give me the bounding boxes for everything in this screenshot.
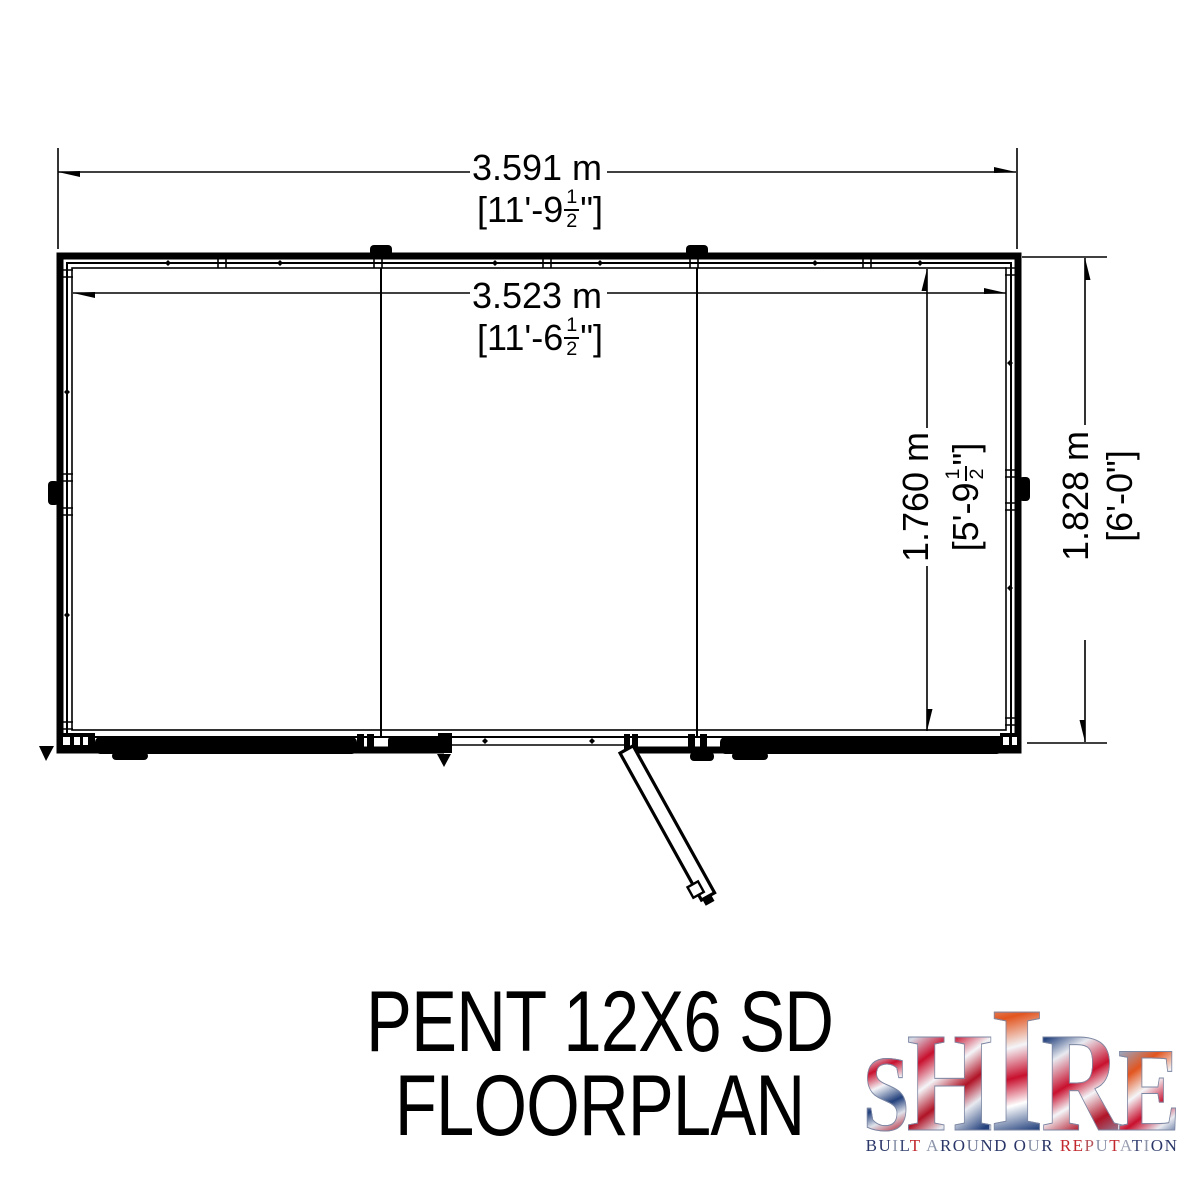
tagline-letter: P <box>1085 1136 1096 1155</box>
tagline-letter: U <box>1027 1136 1041 1155</box>
imperial-prefix: [11'-6 <box>477 317 563 359</box>
panel-joint-top-1 <box>370 245 392 256</box>
door-panel <box>620 746 715 900</box>
door-jamb-block <box>438 733 452 753</box>
arrowhead <box>1085 258 1091 280</box>
joint-tick <box>700 734 707 747</box>
tagline-letter: R <box>940 1136 953 1155</box>
fraction: 12 <box>564 316 579 360</box>
logo-letter: E <box>1118 1030 1177 1150</box>
dim-inner-width-metric: 3.523 m <box>387 274 687 318</box>
corner-notch <box>1012 737 1017 745</box>
panel-joint-top-2 <box>686 245 708 256</box>
tagline-letter: T <box>1132 1136 1144 1155</box>
tagline-letter: T <box>910 1136 922 1155</box>
tagline-letter: E <box>1073 1136 1085 1155</box>
tagline-letter: D <box>994 1136 1008 1155</box>
dim-inner-depth-imperial: [5'-912"] <box>944 347 988 647</box>
fraction: 12 <box>944 466 988 481</box>
tagline-letter: N <box>1165 1136 1179 1155</box>
door-jamb-marker <box>437 754 451 767</box>
bottom-band-mid <box>388 737 442 750</box>
fraction: 12 <box>564 188 579 232</box>
logo-brand: SHIRE <box>864 980 1176 1145</box>
joint-tick <box>688 734 695 747</box>
tagline-letter: U <box>967 1136 981 1155</box>
corner-notch <box>74 737 80 745</box>
bottom-band-right <box>720 737 1002 754</box>
tagline-letter: U <box>878 1136 892 1155</box>
imperial-prefix: [6'-0 <box>1099 473 1141 542</box>
door-opening-gap <box>444 739 626 758</box>
joint-tick <box>357 734 364 747</box>
tagline-letter: A <box>1120 1136 1132 1155</box>
floorplan-page: 3.591 m [11'-912"] 3.523 m [11'-612"] 1.… <box>0 0 1200 1200</box>
dim-outer-depth-imperial: [6'-0"] <box>1098 346 1142 646</box>
corner-notch <box>83 737 88 745</box>
imperial-suffix: "] <box>580 317 603 359</box>
corner-notch <box>1003 737 1009 745</box>
dim-inner-width-imperial: [11'-612"] <box>390 316 690 360</box>
joint-tick <box>367 734 374 747</box>
tagline-letter: I <box>1144 1136 1151 1155</box>
tagline-letter: U <box>1096 1136 1110 1155</box>
tagline-letter: O <box>953 1136 967 1155</box>
bottom-band-left-bump <box>112 752 148 760</box>
tagline-letter: T <box>1109 1136 1120 1155</box>
bottom-joint-bump <box>690 752 714 761</box>
tagline-letter: L <box>899 1136 909 1155</box>
logo-letter: R <box>1041 1011 1118 1153</box>
imperial-prefix: [5'-9 <box>945 482 987 551</box>
panel-joint-left <box>48 481 59 505</box>
door-leaf <box>615 746 718 909</box>
dim-outer-width-metric: 3.591 m <box>387 146 687 190</box>
corner-notch <box>63 737 70 745</box>
logo-letter: I <box>990 980 1042 1160</box>
logo-letter: H <box>906 1011 989 1153</box>
dim-inner-depth-metric: 1.760 m <box>894 347 938 647</box>
tagline-letter: N <box>980 1136 994 1155</box>
tagline-letter: A <box>926 1136 940 1155</box>
dim-outer-depth-metric: 1.828 m <box>1054 346 1098 646</box>
panel-joint-right <box>1019 477 1030 501</box>
arrowhead <box>994 167 1016 173</box>
dim-outer-width-imperial: [11'-912"] <box>390 188 690 232</box>
imperial-suffix: "] <box>580 189 603 231</box>
logo-tagline: BUILT AROUND OUR REPUTATION <box>862 1136 1182 1156</box>
tagline-letter: R <box>1060 1136 1073 1155</box>
arrowhead <box>58 171 80 177</box>
logo-letter: S <box>863 1041 907 1149</box>
bottom-band-right-bump <box>732 752 768 760</box>
tagline-letter: R <box>1041 1136 1054 1155</box>
corner-marker-left <box>39 746 54 761</box>
imperial-prefix: [11'-9 <box>477 189 563 231</box>
tagline-letter: O <box>1151 1136 1165 1155</box>
tagline-letter: O <box>1014 1136 1028 1155</box>
arrowhead <box>1080 720 1086 742</box>
imperial-suffix: "] <box>1099 450 1141 473</box>
bottom-band-left <box>95 737 357 754</box>
imperial-suffix: "] <box>945 443 987 466</box>
tagline-letter: B <box>866 1136 879 1155</box>
